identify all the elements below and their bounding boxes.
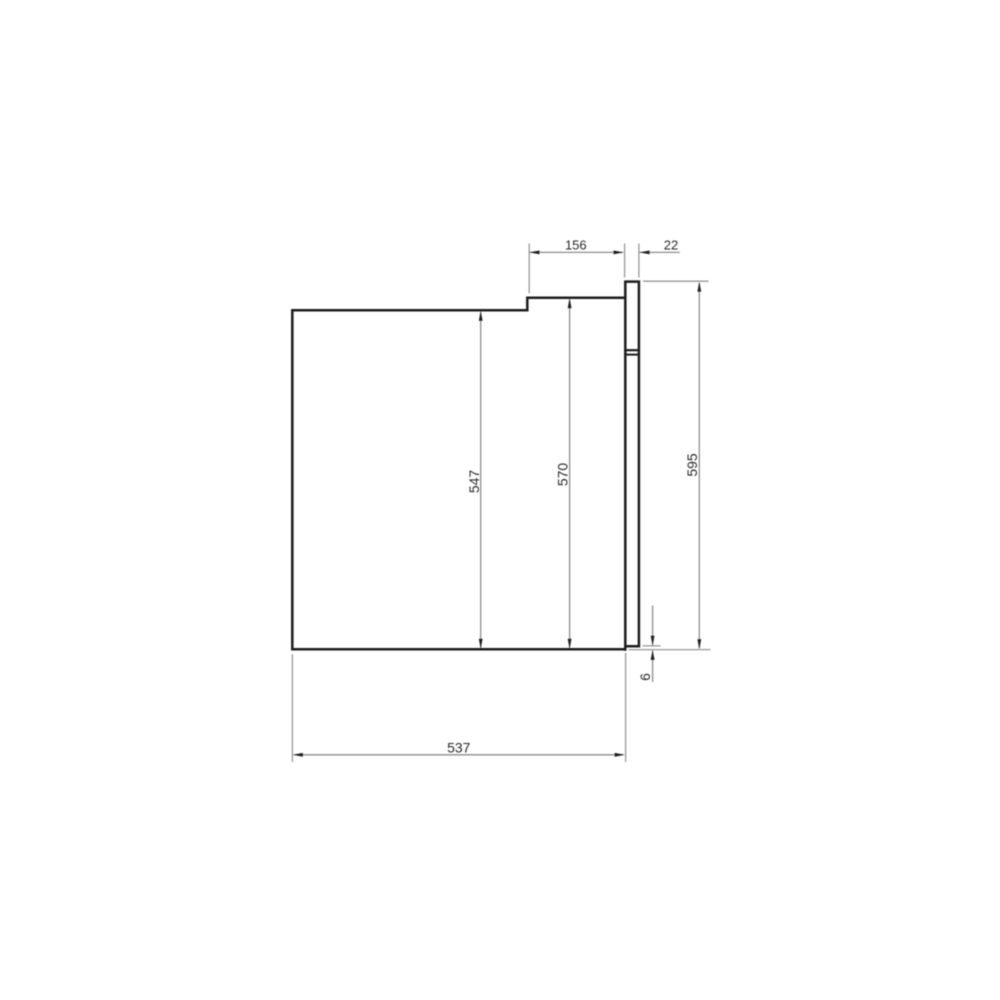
svg-text:595: 595 bbox=[684, 453, 700, 477]
svg-text:156: 156 bbox=[565, 238, 587, 253]
svg-text:547: 547 bbox=[466, 470, 482, 494]
svg-text:537: 537 bbox=[447, 740, 471, 756]
svg-text:6: 6 bbox=[637, 673, 653, 681]
svg-text:22: 22 bbox=[664, 238, 678, 253]
svg-text:570: 570 bbox=[555, 463, 571, 487]
